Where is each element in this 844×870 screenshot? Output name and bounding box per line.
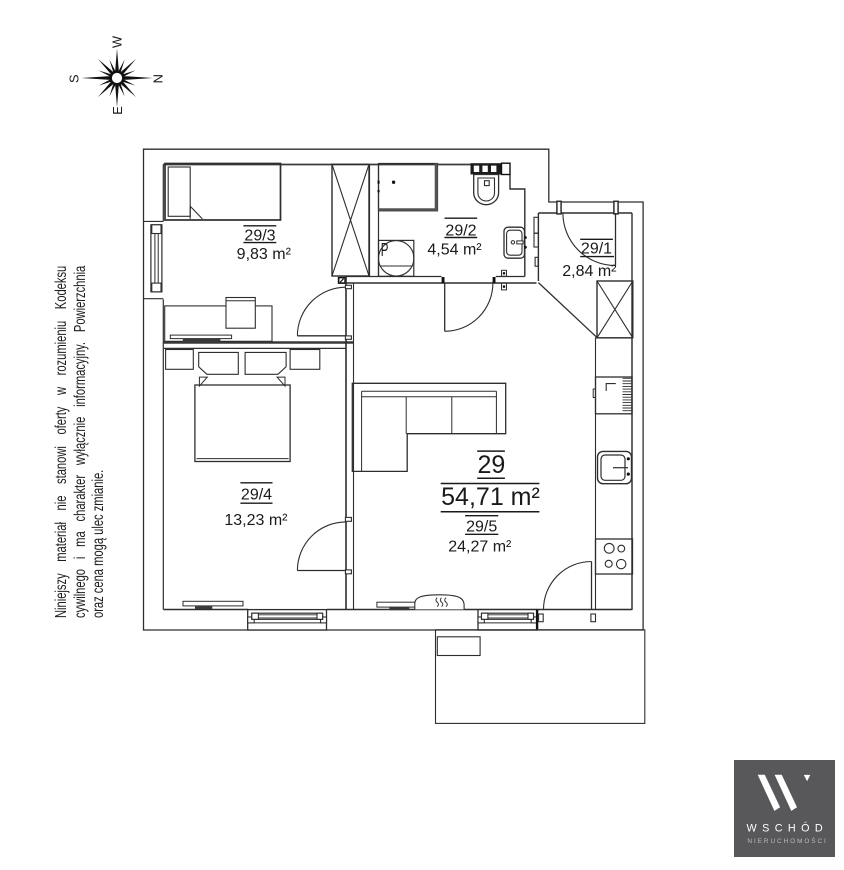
svg-text:29/4: 29/4 [241,486,272,503]
svg-text:9,83 m²: 9,83 m² [237,246,292,263]
svg-text:4,54 m²: 4,54 m² [427,241,482,258]
svg-text:N: N [151,74,166,83]
svg-text:S: S [67,74,82,83]
svg-text:W: W [110,35,125,48]
svg-text:E: E [110,106,125,115]
svg-text:29/1: 29/1 [581,240,612,257]
svg-text:P: P [381,240,389,260]
svg-text:WSCHÓD: WSCHÓD [747,821,829,834]
svg-text:2,84 m²: 2,84 m² [562,263,617,280]
svg-text:13,23 m²: 13,23 m² [224,512,288,529]
svg-text:24,27 m²: 24,27 m² [448,539,512,556]
svg-text:NIERUCHOMOŚCI: NIERUCHOMOŚCI [747,836,827,845]
svg-text:54,71 m²: 54,71 m² [441,483,540,511]
svg-text:29: 29 [477,451,505,479]
svg-text:29/5: 29/5 [466,519,497,536]
svg-text:29/3: 29/3 [244,227,275,244]
